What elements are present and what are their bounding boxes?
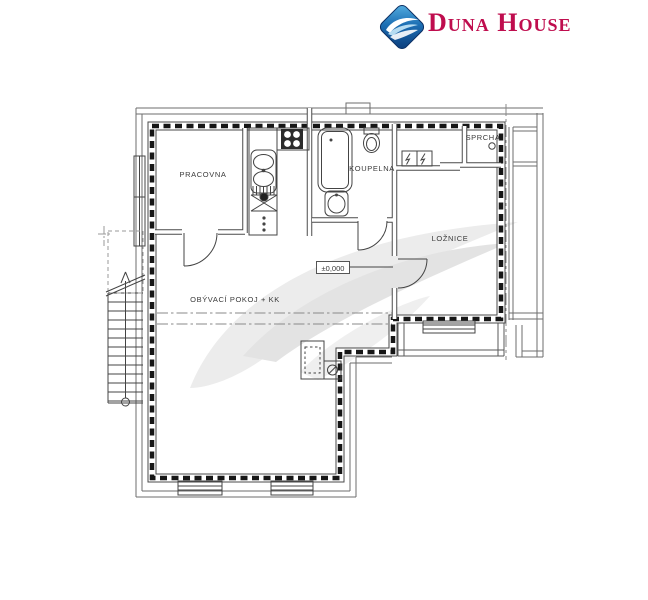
kitchen-block <box>249 128 309 235</box>
neighbor-structure <box>509 113 543 357</box>
window-bottom-1 <box>178 481 222 495</box>
stair-direction-arrow <box>121 272 130 406</box>
room-label-pracovna: PRACOVNA <box>158 170 248 179</box>
room-label-sprcha: SPRCHA <box>455 133 511 142</box>
stove-icon <box>281 129 303 149</box>
floor-plan-page: PRACOVNA KOUPELNA SPRCHA LOŽNICE OBÝVACÍ… <box>0 0 648 600</box>
room-label-koupelna: KOUPELNA <box>332 164 412 173</box>
terrace-outline <box>398 322 504 356</box>
brand-name: Duna House <box>428 8 572 38</box>
brand-logo: Duna House <box>378 2 628 54</box>
kitchen-unit-x <box>251 193 277 211</box>
kitchen-unit-dots <box>262 216 265 231</box>
washbasin-icon <box>325 191 348 216</box>
floor-plan-drawing <box>0 0 648 600</box>
toilet-icon <box>364 128 380 153</box>
room-label-loznice: LOŽNICE <box>415 234 485 243</box>
staircase <box>98 226 145 406</box>
bathtub-icon <box>318 128 352 192</box>
window-bottom-2 <box>271 481 313 495</box>
shower-drain-icon <box>489 143 495 149</box>
room-label-obyvaci-pokoj: OBÝVACÍ POKOJ + KK <box>175 295 295 304</box>
wave-diamond-icon <box>378 2 426 52</box>
door-pracovna <box>184 233 217 266</box>
level-marker: ±0,000 <box>316 261 350 274</box>
